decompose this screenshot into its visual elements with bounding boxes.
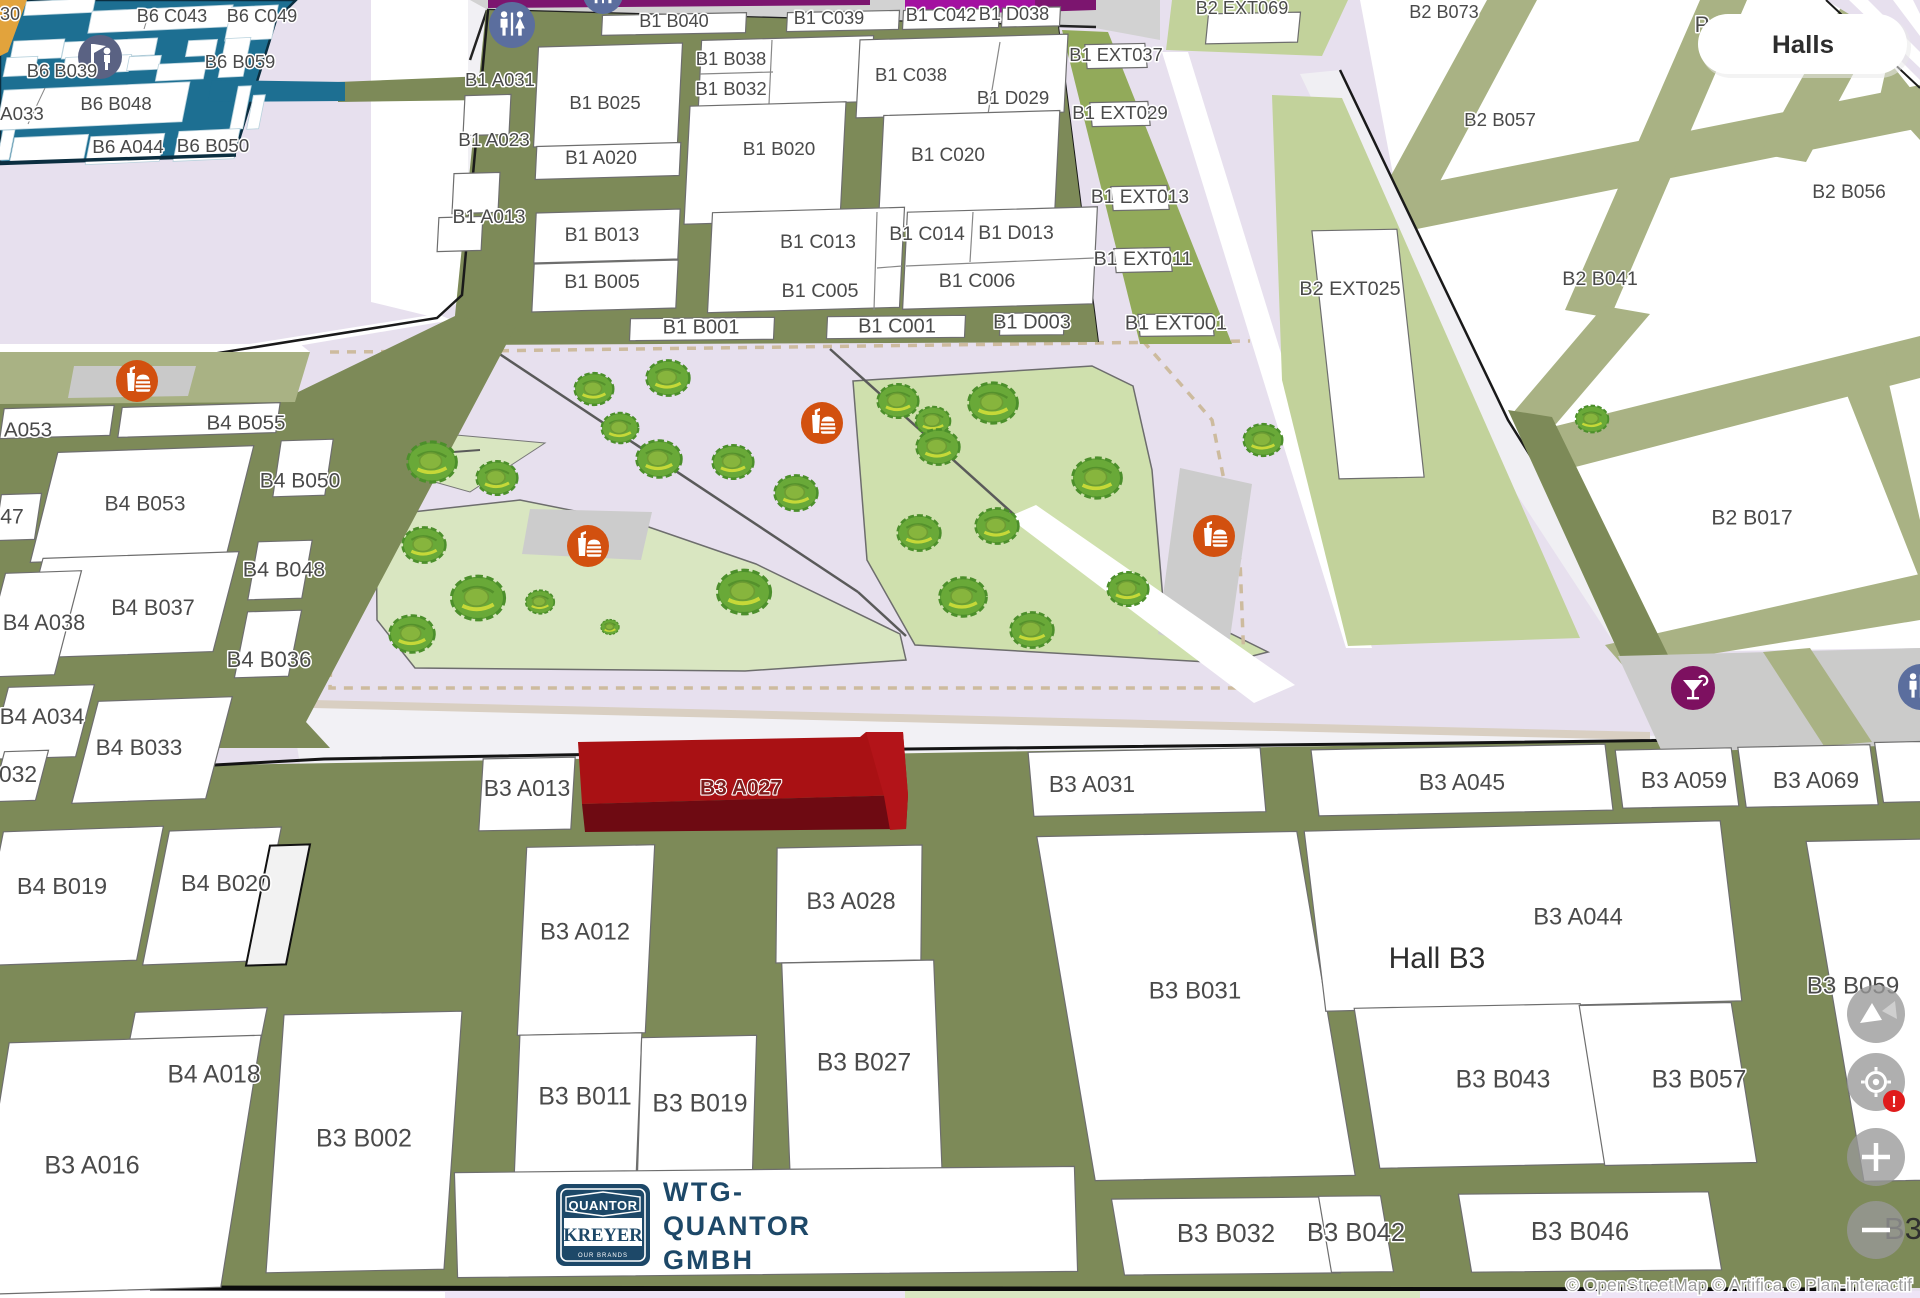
svg-text:B3 A045: B3 A045 (1419, 769, 1505, 795)
svg-text:B1 C005: B1 C005 (782, 280, 859, 302)
svg-text:B6 B048: B6 B048 (80, 93, 151, 114)
svg-text:B1 B032: B1 B032 (695, 78, 766, 99)
svg-text:B4 B033: B4 B033 (96, 735, 183, 760)
svg-text:B2 B073: B2 B073 (1409, 2, 1478, 22)
svg-text:B1 B005: B1 B005 (564, 271, 640, 293)
svg-text:KREYER: KREYER (563, 1226, 643, 1246)
svg-text:B3 A044: B3 A044 (1533, 904, 1623, 930)
svg-text:B6 A044: B6 A044 (92, 137, 163, 158)
svg-text:Halls: Halls (1772, 31, 1834, 59)
svg-text:B3 B002: B3 B002 (316, 1125, 412, 1153)
svg-text:B6 B059: B6 B059 (205, 51, 276, 72)
svg-text:B6 B050: B6 B050 (177, 136, 249, 157)
svg-text:© OpenStreetMap © Artifica © P: © OpenStreetMap © Artifica © Plan-intera… (1566, 1275, 1912, 1295)
svg-text:B2 EXT069: B2 EXT069 (1196, 0, 1289, 18)
svg-text:!: ! (1891, 1094, 1896, 1111)
svg-text:B1 B013: B1 B013 (565, 224, 640, 246)
svg-text:B3 A059: B3 A059 (1641, 767, 1727, 793)
svg-text:B3 B032: B3 B032 (1177, 1220, 1275, 1248)
svg-text:B1 D013: B1 D013 (978, 222, 1053, 244)
svg-text:B4 B050: B4 B050 (260, 470, 341, 493)
svg-text:B3 B046: B3 B046 (1531, 1218, 1629, 1246)
svg-text:B1 D029: B1 D029 (977, 87, 1049, 108)
svg-text:OUR BRANDS: OUR BRANDS (578, 1253, 628, 1259)
svg-text:B3 B043: B3 B043 (1456, 1067, 1551, 1094)
svg-text:B1 B040: B1 B040 (639, 11, 708, 31)
svg-text:B3 A027: B3 A027 (700, 777, 782, 800)
svg-text:B1 EXT001: B1 EXT001 (1125, 312, 1227, 334)
svg-text:B1 A020: B1 A020 (565, 148, 637, 169)
svg-text:B3 B019: B3 B019 (652, 1091, 747, 1118)
svg-text:B1 D038: B1 D038 (979, 4, 1049, 24)
svg-text:B4 A034: B4 A034 (0, 704, 84, 729)
svg-text:B3 A016: B3 A016 (44, 1152, 139, 1180)
svg-text:B1 A013: B1 A013 (453, 207, 526, 228)
svg-text:B4 B020: B4 B020 (181, 870, 271, 896)
svg-text:B4 B048: B4 B048 (243, 558, 326, 582)
svg-text:B3 B057: B3 B057 (1652, 1067, 1747, 1094)
svg-text:GMBH: GMBH (663, 1245, 752, 1275)
svg-text:B1 EXT037: B1 EXT037 (1069, 44, 1163, 65)
svg-text:B3 A028: B3 A028 (806, 889, 895, 915)
svg-text:B3 A069: B3 A069 (1773, 767, 1859, 793)
svg-text:B2 EXT025: B2 EXT025 (1299, 278, 1400, 300)
svg-text:B1 EXT013: B1 EXT013 (1091, 187, 1189, 208)
svg-text:B1 D003: B1 D003 (993, 311, 1071, 333)
svg-text:B1 C039: B1 C039 (794, 8, 864, 28)
svg-text:Hall B3: Hall B3 (1389, 942, 1486, 975)
svg-text:30: 30 (0, 4, 20, 24)
svg-text:B4 B053: B4 B053 (105, 493, 186, 516)
svg-text:B4 B055: B4 B055 (206, 411, 285, 434)
svg-text:B1 EXT029: B1 EXT029 (1072, 102, 1168, 123)
svg-text:B4 B019: B4 B019 (17, 873, 107, 899)
svg-text:B2 B017: B2 B017 (1711, 507, 1792, 530)
svg-text:B4 A018: B4 A018 (168, 1062, 261, 1089)
svg-text:B2 B057: B2 B057 (1464, 109, 1536, 130)
svg-text:B1 B025: B1 B025 (569, 92, 640, 113)
svg-text:B4 B036: B4 B036 (227, 647, 312, 672)
svg-text:B1 B001: B1 B001 (663, 316, 740, 338)
svg-text:B3 A013: B3 A013 (484, 775, 571, 801)
svg-text:B6 B039: B6 B039 (27, 60, 98, 81)
svg-text:B6 C043: B6 C043 (137, 6, 207, 26)
svg-text:B3 A031: B3 A031 (1049, 771, 1135, 797)
svg-text:QUANTOR: QUANTOR (569, 1198, 638, 1213)
svg-text:B3 B031: B3 B031 (1149, 977, 1241, 1004)
svg-text:B1 C006: B1 C006 (939, 270, 1016, 292)
svg-text:B4 B037: B4 B037 (111, 595, 195, 620)
svg-text:B3 A012: B3 A012 (540, 918, 630, 945)
svg-text:B6 C049: B6 C049 (227, 6, 297, 26)
svg-text:B1 A023: B1 A023 (458, 130, 529, 151)
svg-text:A033: A033 (0, 103, 44, 124)
svg-text:B2 B041: B2 B041 (1562, 268, 1638, 290)
svg-text:B2 B056: B2 B056 (1812, 182, 1886, 203)
svg-text:A053: A053 (4, 418, 52, 441)
svg-text:B1 C014: B1 C014 (889, 223, 965, 245)
svg-text:032: 032 (0, 761, 37, 787)
svg-text:B1 C020: B1 C020 (911, 145, 985, 166)
svg-text:47: 47 (0, 506, 24, 529)
svg-text:B1 A031: B1 A031 (465, 69, 535, 90)
svg-text:B3 B027: B3 B027 (817, 1050, 911, 1077)
svg-text:B4 A038: B4 A038 (3, 610, 85, 635)
svg-text:WTG-: WTG- (663, 1177, 742, 1207)
svg-text:B3 B011: B3 B011 (538, 1084, 631, 1111)
svg-text:B1 B020: B1 B020 (743, 139, 815, 160)
svg-text:B1 C042: B1 C042 (906, 5, 976, 25)
svg-text:B1 B038: B1 B038 (696, 48, 767, 69)
svg-text:B1 C001: B1 C001 (858, 315, 936, 337)
svg-text:B3 B042: B3 B042 (1307, 1219, 1405, 1247)
svg-text:B1 C038: B1 C038 (875, 64, 947, 85)
svg-text:QUANTOR: QUANTOR (663, 1211, 809, 1241)
svg-text:B1 EXT011: B1 EXT011 (1094, 248, 1193, 270)
svg-text:B1 C013: B1 C013 (780, 231, 856, 253)
